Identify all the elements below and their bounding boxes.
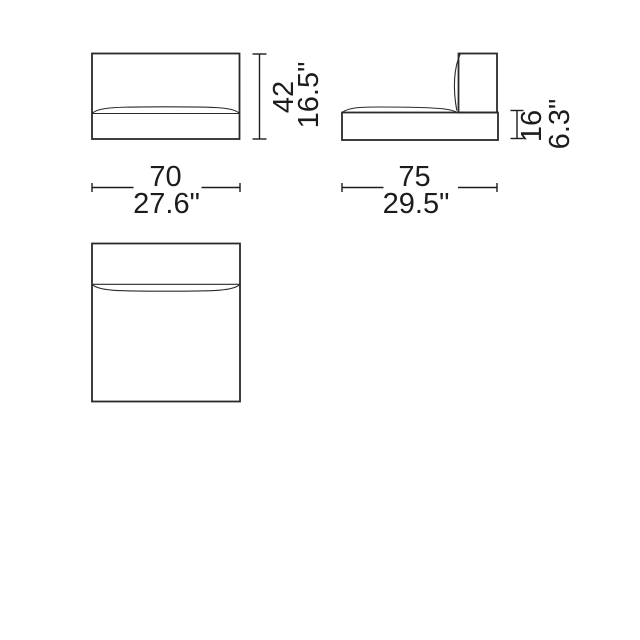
front-height-inches-label: 16.5" — [293, 62, 325, 129]
side-base-height-inches-label: 6.3" — [544, 99, 576, 150]
technical-drawing-canvas: 42 16.5" 70 27.6" — [0, 0, 640, 640]
top-view-outline — [92, 244, 240, 402]
side-base-outline — [342, 113, 498, 141]
side-width-inches-label: 29.5" — [383, 188, 450, 220]
side-back-cushion-outline — [459, 54, 498, 113]
side-view: 16 6.3" 75 29.5" — [342, 54, 576, 221]
top-view — [92, 244, 240, 402]
front-width-inches-label: 27.6" — [133, 188, 200, 220]
drawing-svg: 42 16.5" 70 27.6" — [0, 0, 640, 640]
side-back-cushion-curve — [454, 54, 460, 111]
side-width-dimension: 75 29.5" — [342, 161, 497, 220]
front-view: 42 16.5" 70 27.6" — [92, 54, 325, 221]
front-height-dimension: 42 16.5" — [253, 54, 326, 139]
front-width-dimension: 70 27.6" — [92, 161, 240, 220]
top-seat-cushion-contour — [92, 284, 240, 291]
front-view-outline — [92, 54, 240, 140]
front-seat-cushion-contour — [92, 107, 240, 114]
side-base-height-dimension: 16 6.3" — [511, 99, 577, 150]
